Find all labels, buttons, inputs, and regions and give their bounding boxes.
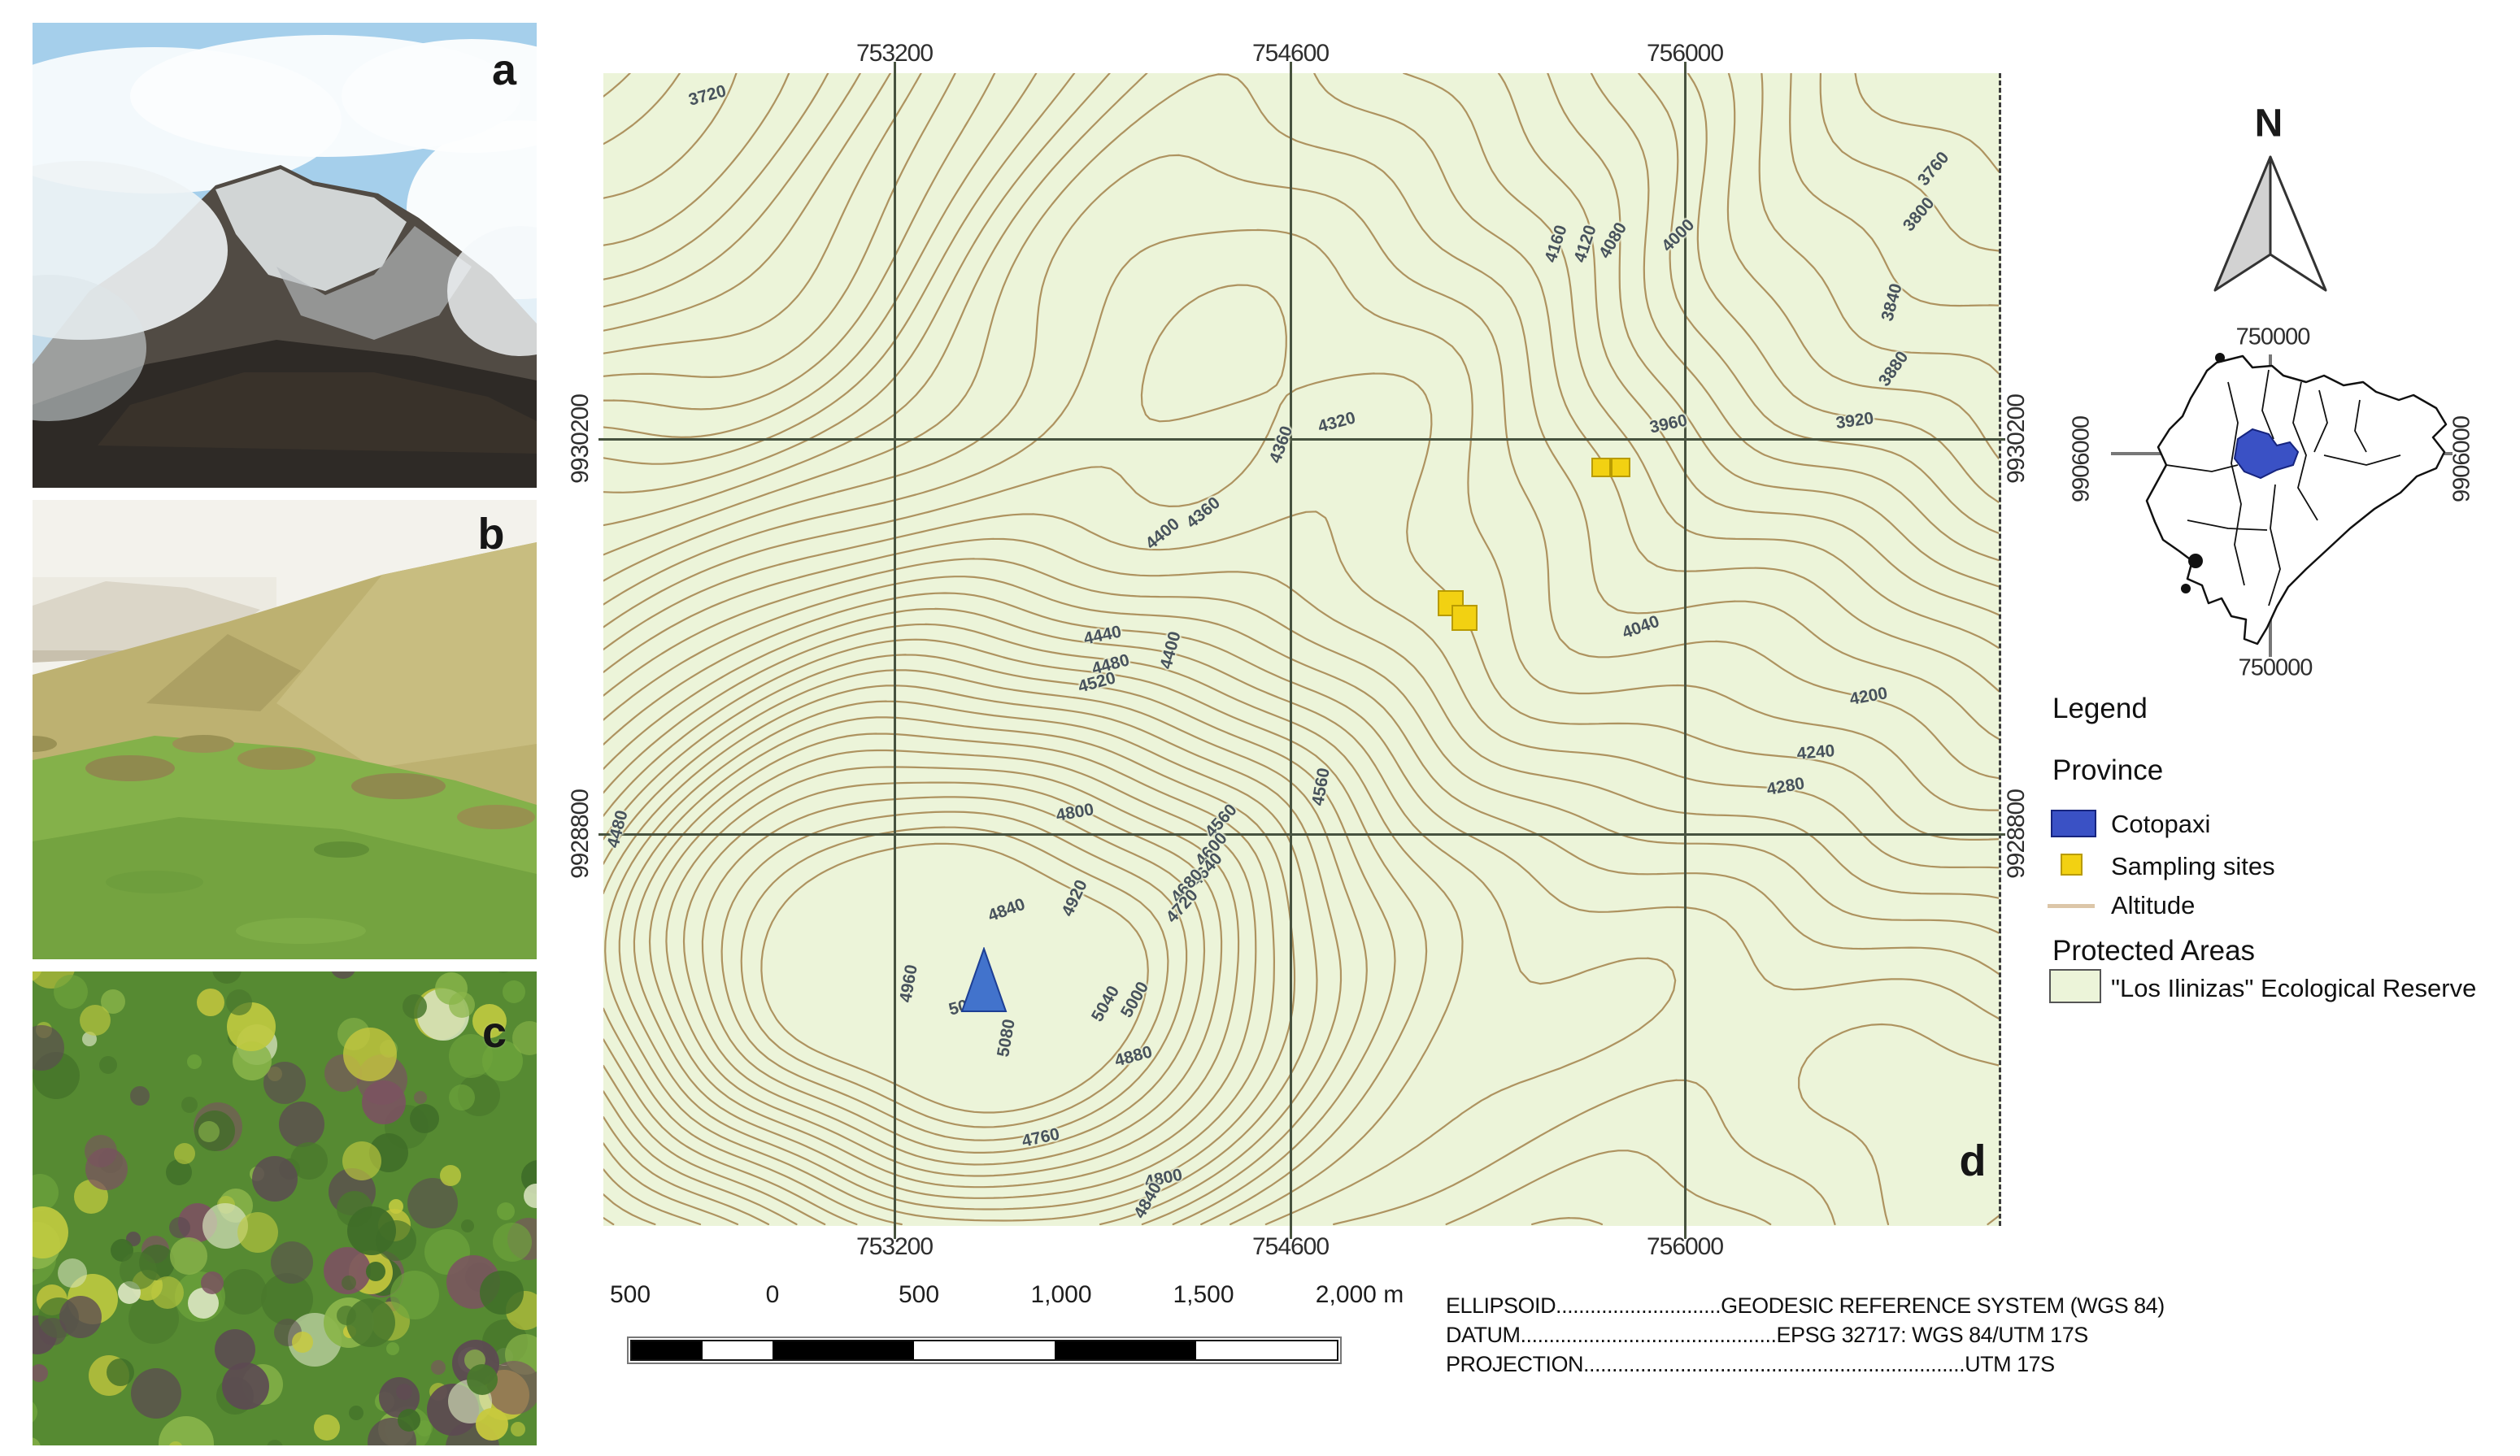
contour-lines [603, 73, 1999, 1226]
grid-line-easting-753200 [894, 62, 896, 1239]
easting-label-top: 756000 [1647, 40, 1723, 67]
inset-tick-left: 9906000 [2069, 416, 2096, 502]
photo-mountain [33, 23, 537, 488]
northing-label-left: 9930200 [567, 394, 594, 484]
legend-item-reserve: "Los Ilinizas" Ecological Reserve [2111, 974, 2476, 1003]
north-label: N [2255, 102, 2283, 146]
sampling-site-marker [1452, 605, 1478, 631]
scale-segment [914, 1341, 1055, 1359]
sampling-site-marker [1611, 458, 1630, 477]
reserve-swatch [2049, 969, 2101, 1003]
grid-line-northing-9928800 [598, 833, 2005, 836]
grid-line-easting-754600 [1290, 62, 1292, 1239]
panel-label-c: c [482, 1007, 507, 1058]
scale-tick-0: 500 [610, 1281, 651, 1309]
easting-label-bottom: 753200 [856, 1233, 933, 1261]
legend-province-heading: Province [2052, 754, 2163, 787]
legend-item-cotopaxi: Cotopaxi [2111, 810, 2210, 839]
scale-tick-2: 500 [899, 1281, 939, 1309]
northing-label-left: 9928800 [567, 789, 594, 879]
easting-label-top: 754600 [1252, 40, 1329, 67]
panel-label-b: b [478, 509, 505, 559]
scale-tick-1: 0 [766, 1281, 780, 1309]
sampling-sites-swatch [2061, 854, 2083, 876]
altitude-line-swatch [2048, 904, 2095, 908]
cotopaxi-swatch [2051, 810, 2096, 837]
figure-stage: a b c d 5 [0, 0, 2520, 1456]
easting-label-bottom: 756000 [1647, 1233, 1723, 1261]
grid-line-northing-9930200 [598, 438, 2005, 441]
contour-elevation-label: 4240 [1796, 741, 1836, 764]
projection-credits: ELLIPSOID.............................GE… [1446, 1291, 2259, 1379]
panel-label-a: a [492, 45, 516, 95]
topographic-map [603, 73, 2001, 1226]
scale-bar [627, 1336, 1342, 1364]
scale-segment [773, 1341, 913, 1359]
photo-mountain-art [33, 23, 537, 488]
northing-label-right: 9928800 [2003, 789, 2030, 879]
scale-segment [703, 1341, 773, 1359]
legend-protected-heading: Protected Areas [2052, 935, 2255, 967]
scale-tick-4: 1,500 [1173, 1281, 1234, 1309]
photo-paramo-hillside [33, 500, 537, 959]
credit-ellipsoid: ELLIPSOID.............................GE… [1446, 1291, 2259, 1320]
ecuador-inset-map [2102, 350, 2460, 663]
inset-tick-top: 750000 [2236, 324, 2310, 351]
easting-label-top: 753200 [856, 40, 933, 67]
north-arrow-icon [2204, 150, 2337, 297]
panel-label-d: d [1960, 1136, 1987, 1186]
photo-cushion-art [33, 971, 537, 1445]
photo-paramo-art [33, 500, 537, 959]
legend-item-sampling-sites: Sampling sites [2111, 852, 2275, 881]
legend-title: Legend [2052, 693, 2148, 725]
scale-segment [1055, 1341, 1195, 1359]
scale-tick-5: 2,000 m [1316, 1281, 1404, 1309]
credit-projection: PROJECTION..............................… [1446, 1350, 2259, 1379]
photo-cushion-plants [33, 971, 537, 1445]
northing-label-right: 9930200 [2003, 394, 2030, 484]
scale-tick-3: 1,000 [1030, 1281, 1091, 1309]
credit-datum: DATUM...................................… [1446, 1320, 2259, 1350]
scale-segment [632, 1341, 703, 1359]
sampling-site-marker [1591, 458, 1611, 477]
scale-segment [1196, 1341, 1337, 1359]
legend-item-altitude: Altitude [2111, 891, 2195, 920]
scale-bar-segments [630, 1340, 1338, 1361]
easting-label-bottom: 754600 [1252, 1233, 1329, 1261]
peak-triangle-marker [960, 947, 1008, 1014]
